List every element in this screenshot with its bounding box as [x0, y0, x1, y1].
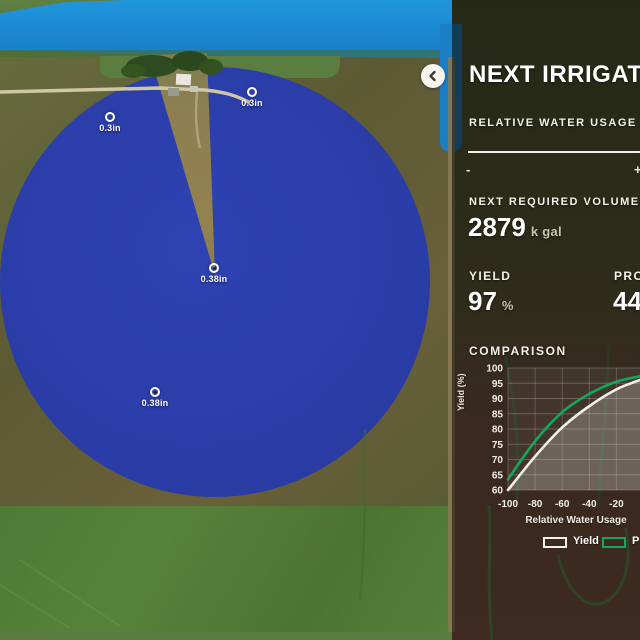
legend-swatch-yield — [543, 537, 567, 548]
required-volume-label: NEXT REQUIRED VOLUME — [469, 196, 640, 208]
legend-swatch-profit — [602, 537, 626, 548]
chart-x-axis-label: Relative Water Usage — [465, 515, 640, 526]
volume-number: 2879 — [468, 212, 526, 242]
panel-title: NEXT IRRIGATION — [469, 61, 640, 89]
water-usage-slider[interactable] — [468, 151, 640, 153]
map-marker[interactable]: 0.3in — [247, 87, 257, 97]
irrigation-app-screen: 0.3in0.3in0.38in0.38in NEXT IRRIGATION R… — [0, 0, 640, 640]
chevron-left-icon — [427, 70, 439, 82]
legend-label-profit: Profit — [632, 535, 640, 547]
yield-unit: % — [502, 298, 514, 313]
profit-value: 44 — [613, 286, 640, 317]
map-marker[interactable]: 0.3in — [105, 112, 115, 122]
yield-number: 97 — [468, 286, 497, 316]
marker-ring-icon — [105, 112, 115, 122]
marker-label: 0.3in — [241, 98, 263, 108]
marker-ring-icon — [247, 87, 257, 97]
yield-value: 97% — [468, 286, 514, 317]
volume-unit: k gal — [531, 224, 562, 239]
back-button[interactable] — [421, 64, 445, 88]
profit-label: PROFIT — [614, 269, 640, 283]
required-volume-value: 2879k gal — [468, 212, 562, 243]
water-usage-label: RELATIVE WATER USAGE — [469, 117, 637, 129]
chart-y-axis-label: Yield (%) — [456, 399, 466, 411]
marker-label: 0.38in — [201, 274, 228, 284]
comparison-title: COMPARISON — [469, 344, 567, 358]
marker-label: 0.3in — [99, 123, 121, 133]
marker-label: 0.38in — [142, 398, 169, 408]
yield-label: YIELD — [469, 269, 511, 283]
marker-ring-icon — [209, 263, 219, 273]
marker-ring-icon — [150, 387, 160, 397]
legend-label-yield: Yield — [573, 535, 599, 547]
map-marker[interactable]: 0.38in — [150, 387, 160, 397]
slider-min-label: - — [466, 162, 470, 177]
slider-max-label: + — [634, 162, 640, 177]
map-marker[interactable]: 0.38in — [209, 263, 219, 273]
